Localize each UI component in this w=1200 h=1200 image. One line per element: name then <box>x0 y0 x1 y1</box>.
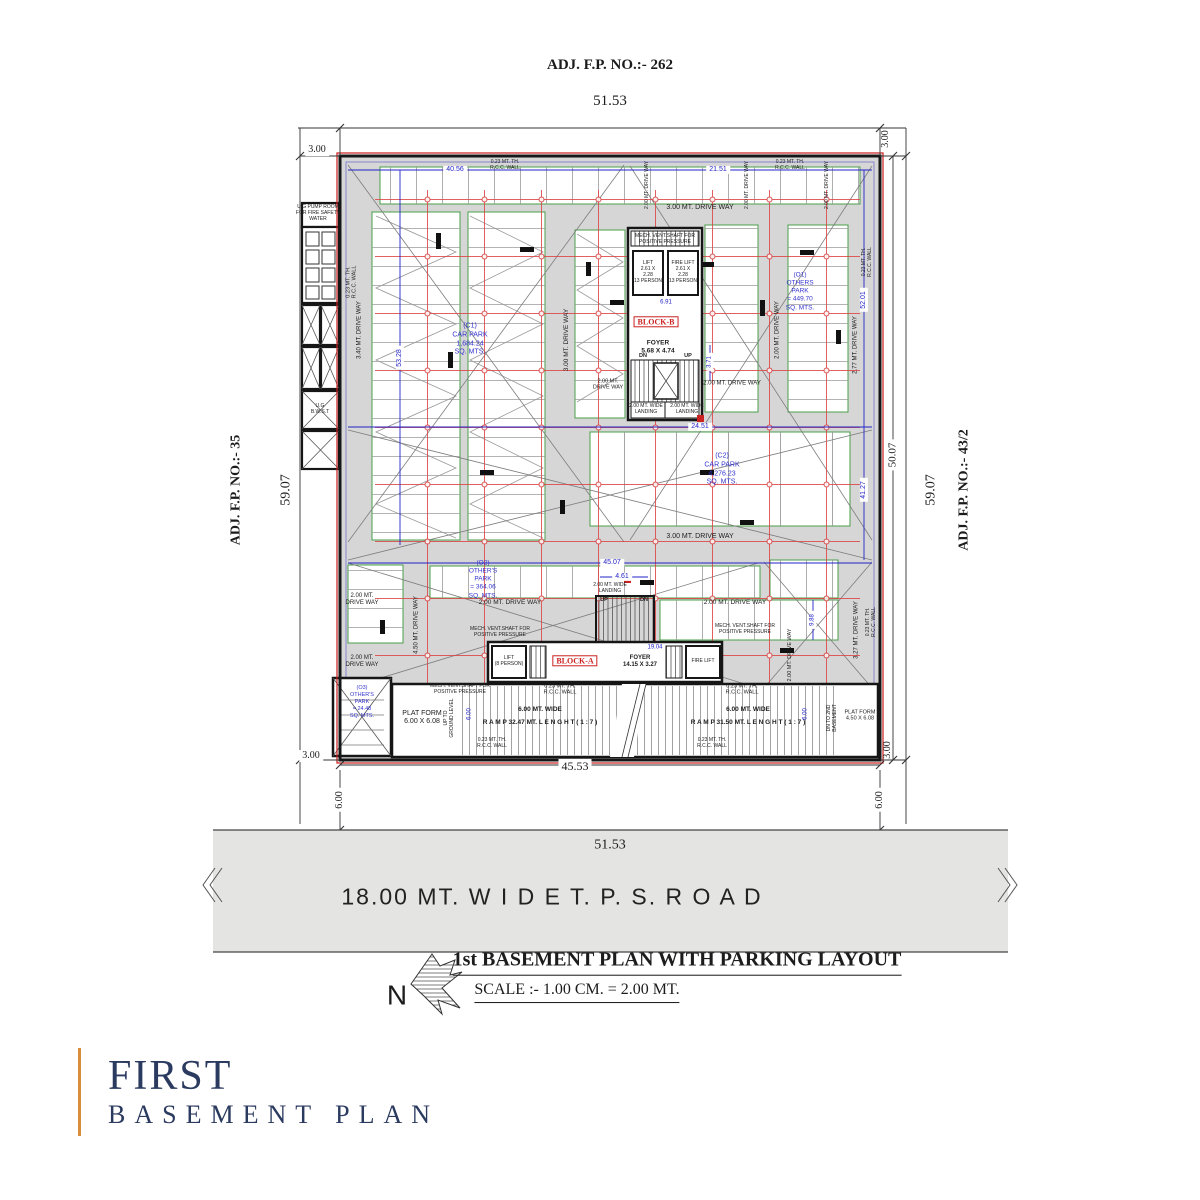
landing-label-b-left: 2.00 MT. WIDE LANDING <box>629 404 663 416</box>
park-area-c1: (C1) CAR PARK 1,684.24 SQ. MTS. <box>452 323 487 358</box>
landing-label-b-right: 2.00 MT. WIDE LANDING <box>670 404 704 416</box>
driveway-label-200-d: 2.00 MT. DRIVE WAY <box>774 301 781 359</box>
driveway-label-200-g: 2.00 MT. DRIVE WAY <box>479 599 542 607</box>
bwst-tank-label: U.G B.W.S.T <box>311 404 329 416</box>
foyer-label-a: FOYER 14.15 X 3.27 <box>623 655 657 669</box>
dim-988: 9.88 <box>809 611 816 629</box>
park-area-o1: (O1) OTHERS PARK = 449.70 SQ. MTS. <box>786 272 815 313</box>
lift-label-b: LIFT 2.61 X 2.28 (13 PERSON) <box>632 261 663 285</box>
dim-right-inner-height: 50.07 <box>887 440 900 471</box>
wall-label-left: 0.23 MT. TH. R.C.C. WALL <box>346 266 359 299</box>
platform-right-label: PLAT FORM 4.50 X 6.08 <box>845 710 876 723</box>
road-label: 18.00 MT. W I D E T. P. S. R O A D <box>341 883 762 910</box>
driveway-label-300-top: 3.00 MT. DRIVE WAY <box>666 204 733 212</box>
wall-label-ramp-top-right: 0.23 MT. TH. R.C.C. WALL <box>726 684 759 697</box>
stair-dn-a: DN <box>640 597 648 603</box>
wall-label-top-right: 0.23 MT. TH. R.C.C. WALL <box>775 160 805 172</box>
driveway-label-300-mid: 3.00 MT. DRIVE WAY <box>666 533 733 541</box>
driveway-label-340: 3.40 MT. DRIVE WAY <box>356 301 363 359</box>
ramp-left-label: R A M P 32.47 MT. L E N G H T ( 1 : 7 ) <box>483 719 598 727</box>
driveway-label-200-h: 2.00 MT. DRIVE WAY <box>704 599 767 607</box>
dim-5201: 52.01 <box>860 288 868 312</box>
stair-dn-b: DN <box>639 353 647 359</box>
sheet-title-line2: BASEMENT PLAN <box>108 1100 439 1131</box>
driveway-label-277: 2.77 MT. DRIVE WAY <box>852 316 859 374</box>
driveway-label-200-c: 2.00 MT. DRIVE WAY <box>825 161 831 209</box>
dim-ramp-width-right: 6.00 <box>802 708 809 720</box>
park-area-c2: (C2) CAR PARK 4,276.23 SQ. MTS. <box>704 453 739 488</box>
sheet-title-line1: FIRST <box>108 1052 232 1102</box>
block-b-label: BLOCK-B <box>634 316 679 327</box>
vent-shaft-label-a-left: MECH. VENT.SHAFT FOR POSITIVE PRESSURE <box>470 627 530 639</box>
dim-ramp-width-left: 6.00 <box>466 708 473 720</box>
dim-setback-top-right: 3.00 <box>880 130 892 148</box>
dim-road-offset-left: 6.00 <box>334 788 346 812</box>
driveway-label-327: 3.27 MT. DRIVE WAY <box>853 601 860 659</box>
fire-lift-label-a: FIRE LIFT <box>691 659 714 665</box>
platform-left-label: PLAT FORM 6.00 X 6.08 <box>402 710 441 727</box>
park-area-o2: (O2) OTHER'S PARK = 364.06 SQ. MTS. <box>469 560 498 601</box>
landing-label-a: 2.00 MT. WIDE LANDING <box>593 583 627 595</box>
adjacent-plot-right-label: ADJ. F.P. NO.:- 43/2 <box>957 429 974 550</box>
driveway-label-200-e: 2.00 MT. DRIVE WAY <box>345 593 378 607</box>
wall-label-top-left: 0.23 MT. TH. R.C.C. WALL <box>490 160 520 172</box>
wall-label-ramp-top-left: 0.23 MT. TH. R.C.C. WALL <box>544 684 577 697</box>
dim-right-height: 59.07 <box>924 474 941 506</box>
ramp-wide-left: 6.00 MT. WIDE <box>518 706 562 714</box>
adjacent-plot-top-label: ADJ. F.P. NO.:- 262 <box>547 57 673 75</box>
dim-371: 3.71 <box>706 353 713 371</box>
wall-label-right-lower: 0.23 MT. TH. R.C.C. WALL <box>866 607 878 637</box>
stair-up-a: UP <box>600 597 608 603</box>
dim-top-width: 51.53 <box>593 93 627 111</box>
wall-label-ramp-bottom-left: 0.23 MT. TH. R.C.C. WALL <box>477 738 507 750</box>
dim-setback-bottom-left: 3.00 <box>299 750 323 762</box>
vent-shaft-label-b: MECH. VENT.SHAFT FOR POSITIVE PRESSURE <box>635 234 695 246</box>
driveway-label-200-b: 2.00 MT. DRIVE WAY <box>745 161 751 209</box>
dim-road-offset-right: 6.00 <box>874 788 886 812</box>
block-a-label: BLOCK-A <box>552 655 597 666</box>
adjacent-plot-left-label: ADJ. F.P. NO.:- 35 <box>229 435 246 546</box>
title-accent-bar <box>78 1048 81 1136</box>
drawing-title: 1st BASEMENT PLAN WITH PARKING LAYOUT <box>453 949 902 976</box>
dim-4056: 40.56 <box>443 166 467 174</box>
lift-label-a: LIFT (8 PERSON) <box>495 656 524 668</box>
driveway-label-200-core-left: 2.00 MT. DRIVE WAY <box>593 379 623 392</box>
dim-2451: 24.51 <box>688 423 712 431</box>
park-area-o3: (O3) OTHER'S PARK = 24.48 SQ. MTS. <box>350 685 374 719</box>
dim-left-height: 59.07 <box>279 474 296 506</box>
vent-shaft-label-ramp: MECH. VENT.SHAFT FOR POSITIVE PRESSURE <box>430 684 490 696</box>
ramp-dn-note: DN TO 2ND BASEMENT <box>827 704 839 732</box>
vent-shaft-label-a-right: MECH. VENT.SHAFT FOR POSITIVE PRESSURE <box>715 624 775 636</box>
dim-2151: 21.51 <box>706 166 730 174</box>
ramp-right-label: R A M P 31.50 MT. L E N G H T ( 1 : 7 ) <box>691 719 806 727</box>
wall-label-ramp-bottom-right: 0.23 MT. TH. R.C.C. WALL <box>697 738 727 750</box>
dim-691: 6.91 <box>657 299 675 306</box>
driveway-label-300-vert: 3.00 MT. DRIVE WAY <box>563 309 571 372</box>
dim-5328: 53.28 <box>396 346 404 370</box>
driveway-label-200-f: 2.00 MT. DRIVE WAY <box>345 655 378 669</box>
stair-up-b: UP <box>684 353 692 359</box>
drawing-scale: SCALE :- 1.00 CM. = 2.00 MT. <box>474 981 679 1003</box>
pump-room-label: U.G PUMP ROOM FOR FIRE SAFETY WATER <box>296 205 340 223</box>
driveway-label-200-i: 2.00 MT. DRIVE WAY <box>787 629 793 682</box>
ramp-up-note: UP TO GROUND LEVEL <box>444 698 456 737</box>
dim-bottom-inner-width: 45.53 <box>559 759 592 773</box>
north-letter: N <box>387 978 407 1011</box>
wall-label-right-upper: 0.23 MT. TH. R.C.C. WALL <box>862 247 874 277</box>
ramp-wide-right: 6.00 MT. WIDE <box>726 706 770 714</box>
dim-setback-bottom-right: 3.00 <box>882 741 894 759</box>
driveway-label-200-a: 2.00 MT. DRIVE WAY <box>645 161 651 209</box>
dim-road-width: 51.53 <box>594 838 626 855</box>
floor-plan-sheet: ADJ. F.P. NO.:- 262 51.53 ADJ. F.P. NO.:… <box>0 0 1200 1200</box>
dim-4127: 41.27 <box>860 478 868 502</box>
driveway-label-200-core-right: 2.00 MT. DRIVE WAY <box>703 380 761 387</box>
dim-setback-top-left: 3.00 <box>305 144 329 156</box>
dim-4507: 45.07 <box>600 559 624 567</box>
dim-1904: 19.04 <box>644 644 665 651</box>
driveway-label-450: 4.50 MT. DRIVE WAY <box>413 596 420 654</box>
fire-lift-label-b: FIRE LIFT 2.61 X 2.28 (13 PERSON) <box>667 261 698 285</box>
dim-461: 4.61 <box>612 573 632 581</box>
